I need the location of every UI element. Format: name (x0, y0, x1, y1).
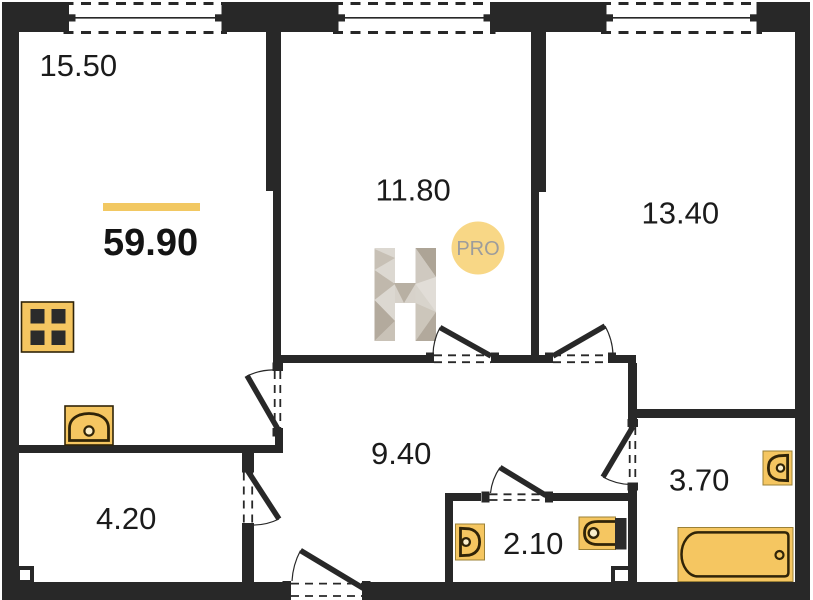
svg-text:9.40: 9.40 (371, 436, 431, 471)
svg-text:13.40: 13.40 (642, 196, 720, 231)
svg-text:2.10: 2.10 (503, 526, 563, 561)
svg-text:11.80: 11.80 (376, 173, 451, 208)
svg-text:4.20: 4.20 (96, 501, 156, 536)
svg-text:59.90: 59.90 (103, 222, 198, 264)
svg-text:15.50: 15.50 (40, 48, 118, 83)
svg-text:PRO: PRO (456, 238, 499, 260)
svg-text:3.70: 3.70 (669, 463, 729, 498)
